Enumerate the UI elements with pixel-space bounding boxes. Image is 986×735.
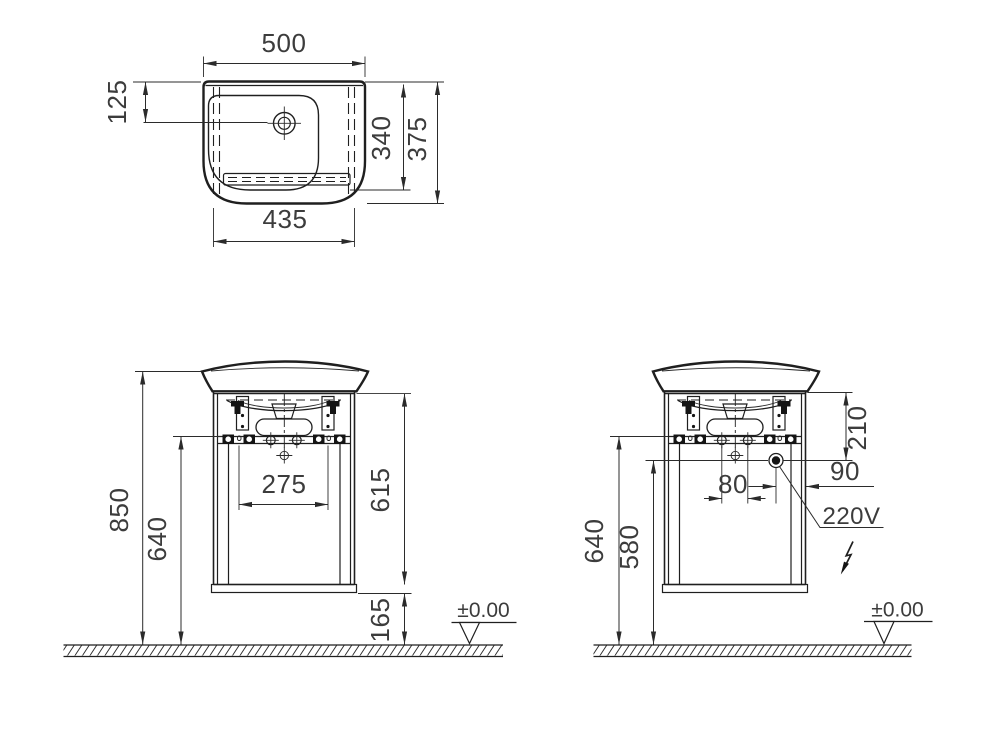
dim-front-floor-clearance: 165	[358, 594, 412, 645]
front-ground-datum: ±0.00	[452, 599, 517, 644]
datum-triangle-icon	[874, 622, 894, 644]
datum-label: ±0.00	[871, 599, 923, 622]
side-basin	[653, 362, 819, 392]
dim-front-total-height: 850	[104, 372, 201, 645]
plan-view: 500 125 340 375 43	[102, 28, 444, 247]
side-basin-rim-inner	[662, 368, 810, 371]
dim-label: 90	[830, 456, 860, 486]
dim-label: 580	[614, 525, 644, 570]
datum-label: ±0.00	[457, 599, 509, 622]
washbasin-unit-drawing: 500 125 340 375 43	[0, 0, 986, 735]
power-socket	[769, 454, 783, 468]
dim-front-cabinet-height: 615	[357, 394, 412, 585]
side-center-mark	[727, 448, 743, 464]
front-fixing-holes	[263, 432, 305, 448]
dim-side-socket-to-edge: 90	[749, 456, 875, 504]
front-cabinet-base	[212, 585, 357, 593]
side-ground-datum: ±0.00	[864, 599, 933, 644]
side-fixing-holes	[714, 432, 756, 448]
dim-label: 275	[262, 469, 307, 499]
dim-label: 640	[142, 517, 172, 562]
dim-plan-tap-offset: 125	[102, 80, 268, 125]
dim-label: 125	[102, 80, 132, 125]
dim-label: 435	[263, 204, 308, 234]
dim-plan-inner-width: 435	[214, 204, 355, 247]
tap-hole	[268, 107, 302, 141]
dim-front-mounting-height: 640	[142, 437, 222, 645]
dim-side-fixing-span: 80	[704, 446, 766, 504]
plan-bowl-outline	[209, 96, 319, 191]
dim-label: 340	[366, 116, 396, 161]
dim-side-top-to-socket: 210	[783, 393, 872, 461]
side-ground-line	[594, 645, 912, 657]
plan-shelf-slot	[224, 174, 351, 186]
dim-label: 500	[262, 28, 307, 58]
front-basin-rim-inner	[211, 368, 359, 371]
side-view: 640 580 210 80 90	[579, 362, 933, 657]
dim-label: 80	[718, 469, 748, 499]
lightning-bolt-icon	[841, 542, 853, 575]
side-interior	[669, 394, 802, 468]
front-ground-line	[64, 645, 504, 657]
front-interior	[218, 394, 351, 464]
voltage-label: 220V	[822, 503, 880, 530]
front-basin	[202, 362, 368, 392]
datum-triangle-icon	[460, 623, 480, 644]
front-view: 850 640 275 615 165	[64, 362, 517, 657]
dim-label: 165	[365, 598, 395, 643]
dim-label: 210	[842, 406, 872, 451]
technical-drawing-sheet: 500 125 340 375 43	[0, 0, 986, 735]
front-center-mark	[276, 448, 292, 464]
side-cabinet-base	[663, 585, 808, 593]
dim-label: 375	[402, 117, 432, 162]
dim-label: 615	[365, 468, 395, 513]
dim-label: 850	[104, 488, 134, 533]
dim-label: 640	[579, 519, 609, 564]
dim-plan-overall-width: 500	[204, 28, 366, 77]
